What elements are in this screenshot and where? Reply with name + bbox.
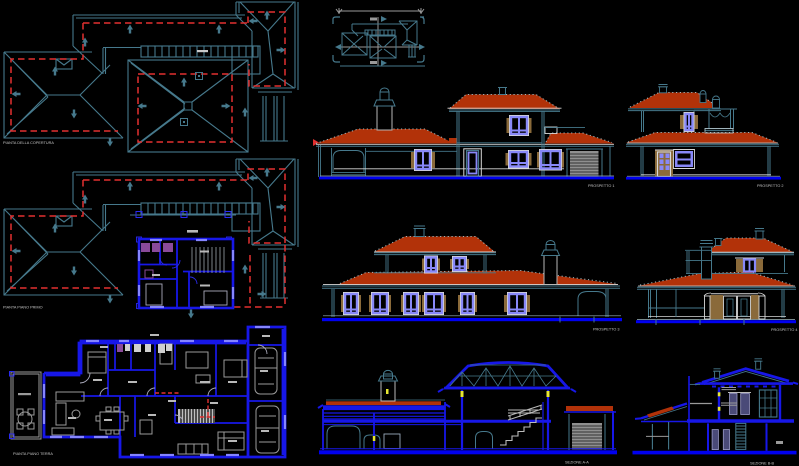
svg-text:SEZIONE B-B: SEZIONE B-B xyxy=(750,462,775,466)
svg-text:PROSPETTO 3: PROSPETTO 3 xyxy=(593,328,620,332)
svg-text:SEZIONE A-A: SEZIONE A-A xyxy=(565,461,589,465)
svg-text:PROSPETTO 4: PROSPETTO 4 xyxy=(771,328,798,332)
svg-text:PIANTA PIANO PRIMO: PIANTA PIANO PRIMO xyxy=(3,306,43,310)
svg-text:PIANTA DELLA COPERTURA: PIANTA DELLA COPERTURA xyxy=(3,141,54,145)
svg-text:PROSPETTO 2: PROSPETTO 2 xyxy=(757,184,784,188)
svg-text:PIANTA PIANO TERRA: PIANTA PIANO TERRA xyxy=(13,452,53,456)
svg-text:PROSPETTO 1: PROSPETTO 1 xyxy=(588,184,615,188)
